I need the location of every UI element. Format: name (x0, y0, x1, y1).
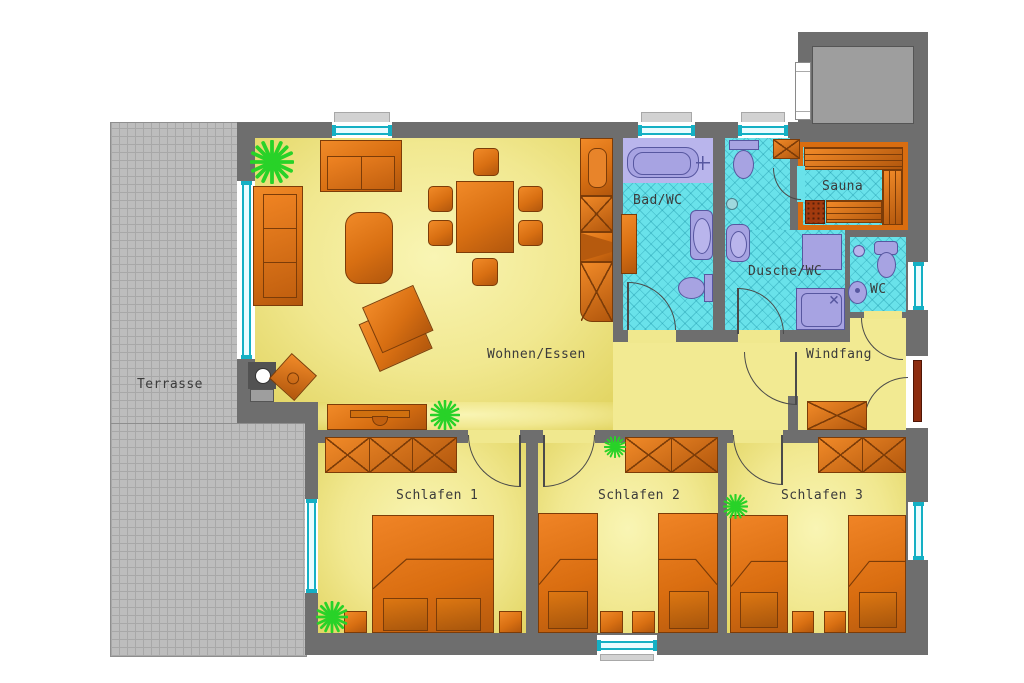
sink (726, 224, 750, 262)
faucet-icon (696, 156, 710, 170)
bathroom-door-leaf (627, 282, 629, 330)
toilet-roll-icon (853, 245, 865, 257)
window (908, 502, 928, 560)
dining-table (456, 181, 514, 253)
plant-icon (316, 601, 348, 633)
kitchen-unit (580, 262, 613, 322)
shower-room-door-leaf (737, 288, 739, 334)
room-label-bad-wc: Bad/WC (633, 193, 682, 208)
room-label-schlafen-3: Schlafen 3 (781, 488, 863, 503)
room-label-terrasse: Terrasse (137, 377, 203, 392)
coffee-table (345, 212, 393, 284)
nightstand (499, 611, 522, 633)
sauna-bench (882, 170, 903, 225)
toilet (729, 140, 759, 150)
bedroom3-door-leaf (781, 435, 783, 485)
dining-chair (472, 258, 498, 286)
window (597, 635, 657, 655)
room-label-wc: WC (870, 282, 886, 297)
room-label-dusche-wc: Dusche/WC (748, 264, 822, 279)
annex-door (795, 62, 811, 120)
fireplace-hearth (250, 389, 274, 402)
sauna-heater-icon (805, 200, 825, 224)
sofa (320, 140, 402, 192)
tv-sideboard (327, 404, 427, 430)
room-label-schlafen-1: Schlafen 1 (396, 488, 478, 503)
plant-icon (723, 494, 748, 519)
toilet (877, 252, 896, 278)
sauna-cabinet (773, 139, 800, 159)
nightstand (632, 611, 655, 633)
sink (690, 210, 713, 260)
dining-chair (518, 220, 543, 246)
dining-chair (518, 186, 543, 212)
windfang-door-leaf (795, 352, 797, 405)
room-label-windfang: Windfang (806, 347, 872, 362)
wardrobe (818, 437, 906, 473)
plant-icon (430, 400, 460, 430)
room-label-schlafen-2: Schlafen 2 (598, 488, 680, 503)
nightstand (792, 611, 814, 633)
bathtub (627, 147, 699, 178)
bedroom2-door-leaf (543, 435, 545, 487)
floor-drain-icon (726, 198, 738, 210)
window (638, 122, 695, 138)
sauna-bench (826, 200, 882, 223)
sink (848, 281, 867, 304)
kitchen-unit (580, 138, 613, 196)
plant-icon (250, 140, 294, 184)
door-opening (628, 330, 676, 343)
floor-plan: Terrasse Wohnen/Essen Bad/WC Dusche/WC S… (0, 0, 1024, 683)
room-label-wohnen-essen: Wohnen/Essen (487, 347, 586, 362)
wardrobe (325, 437, 457, 473)
dining-chair (473, 148, 499, 176)
window (305, 499, 318, 593)
double-bed (372, 515, 494, 633)
sauna-bench (804, 147, 903, 170)
single-bed (658, 513, 718, 633)
window (738, 122, 788, 138)
shower (796, 288, 845, 330)
living-room-floor (255, 138, 613, 402)
bathroom-cabinet (621, 214, 637, 274)
plant-icon (604, 436, 626, 458)
dining-chair (428, 220, 453, 246)
toilet (733, 150, 754, 179)
windfang-cabinet (807, 401, 867, 430)
toilet (704, 274, 713, 302)
dining-chair (428, 186, 453, 212)
terrace-area (110, 423, 307, 657)
single-bed (730, 515, 788, 633)
window-sill (600, 654, 654, 661)
window (908, 262, 928, 310)
single-bed (848, 515, 906, 633)
kitchen-unit (580, 196, 613, 232)
sofa (253, 186, 303, 306)
window (332, 122, 392, 138)
wardrobe (625, 437, 718, 473)
toilet (678, 277, 705, 299)
nightstand (824, 611, 846, 633)
entrance-door (913, 360, 922, 422)
single-bed (538, 513, 598, 633)
nightstand (600, 611, 623, 633)
bedroom1-door-leaf (519, 435, 521, 487)
annex-room (812, 46, 914, 124)
kitchen-stove (580, 232, 613, 262)
room-label-sauna: Sauna (822, 179, 863, 194)
